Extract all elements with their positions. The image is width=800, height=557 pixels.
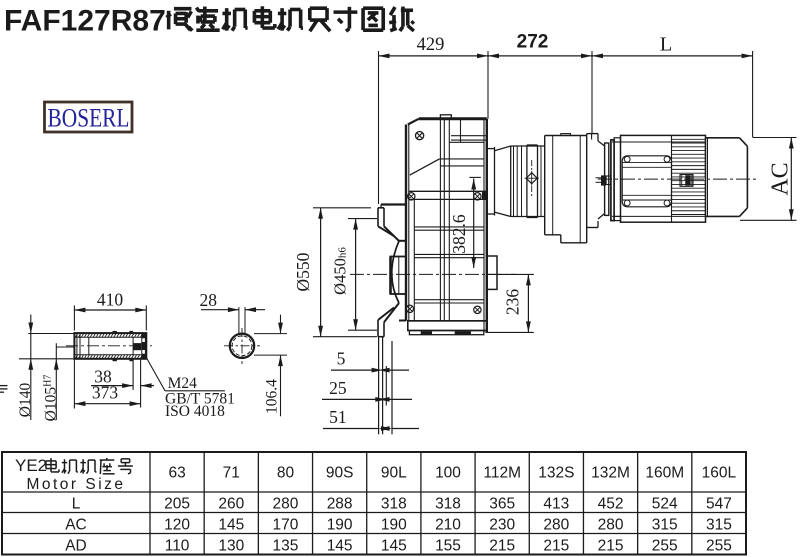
svg-text:524: 524 [652, 496, 678, 513]
svg-text:Motor Size: Motor Size [26, 476, 125, 493]
svg-text:AC: AC [65, 517, 87, 534]
svg-text:106.4: 106.4 [264, 379, 281, 414]
svg-text:260: 260 [218, 496, 244, 513]
svg-text:215: 215 [543, 538, 569, 555]
svg-text:205: 205 [164, 496, 190, 513]
svg-text:120: 120 [164, 517, 190, 534]
svg-text:382.6: 382.6 [449, 214, 469, 254]
svg-text:230: 230 [489, 517, 515, 534]
svg-text:130: 130 [218, 538, 244, 555]
svg-text:410: 410 [97, 290, 124, 310]
svg-text:170: 170 [273, 517, 299, 534]
svg-text:365: 365 [489, 496, 515, 513]
svg-text:80: 80 [277, 465, 295, 482]
svg-text:ISO 4018: ISO 4018 [165, 403, 225, 420]
svg-text:215: 215 [598, 538, 624, 555]
svg-text:28: 28 [200, 290, 218, 310]
svg-text:190: 190 [381, 517, 407, 534]
svg-text:413: 413 [543, 496, 569, 513]
svg-text:272: 272 [517, 32, 549, 53]
svg-text:255: 255 [652, 538, 678, 555]
svg-text:315: 315 [652, 517, 678, 534]
svg-text:160M: 160M [645, 465, 684, 482]
svg-text:Ø550: Ø550 [293, 252, 313, 291]
svg-text:51: 51 [329, 407, 347, 427]
svg-text:112M: 112M [483, 465, 521, 482]
svg-text:190: 190 [327, 517, 353, 534]
svg-text:145: 145 [381, 538, 407, 555]
svg-text:236: 236 [503, 289, 523, 316]
svg-text:288: 288 [327, 496, 353, 513]
svg-text:L: L [660, 34, 673, 56]
svg-text:145: 145 [218, 517, 244, 534]
svg-text:318: 318 [435, 496, 461, 513]
svg-text:BOSERL: BOSERL [48, 103, 130, 133]
svg-text:110: 110 [165, 538, 190, 555]
svg-text:L: L [72, 496, 81, 513]
svg-text:280: 280 [598, 517, 624, 534]
svg-text:318: 318 [381, 496, 407, 513]
svg-text:373: 373 [92, 383, 119, 403]
svg-text:160L: 160L [702, 465, 737, 482]
svg-text:429: 429 [417, 35, 445, 55]
svg-text:155: 155 [435, 538, 461, 555]
svg-text:Ø140: Ø140 [17, 383, 34, 418]
svg-text:FAF127R87: FAF127R87 [4, 5, 166, 38]
svg-text:AD: AD [65, 538, 87, 555]
svg-text:215: 215 [489, 538, 515, 555]
svg-text:452: 452 [598, 496, 624, 513]
svg-text:132M: 132M [591, 465, 630, 482]
svg-text:315: 315 [706, 517, 732, 534]
svg-text:547: 547 [706, 496, 732, 513]
svg-text:280: 280 [273, 496, 299, 513]
svg-text:135: 135 [273, 538, 299, 555]
svg-text:25: 25 [329, 378, 347, 398]
svg-text:100: 100 [435, 465, 461, 482]
svg-text:145: 145 [327, 538, 353, 555]
svg-text:M24: M24 [168, 375, 198, 392]
svg-text:AC: AC [768, 162, 794, 195]
svg-text:90L: 90L [381, 465, 407, 482]
svg-text:280: 280 [543, 517, 569, 534]
svg-text:YE2: YE2 [15, 456, 47, 475]
svg-text:132S: 132S [538, 465, 574, 482]
svg-text:63: 63 [168, 465, 185, 482]
svg-text:90S: 90S [326, 465, 354, 482]
svg-text:5: 5 [337, 349, 346, 369]
svg-text:210: 210 [435, 517, 461, 534]
svg-text:71: 71 [223, 465, 240, 482]
svg-text:255: 255 [706, 538, 732, 555]
